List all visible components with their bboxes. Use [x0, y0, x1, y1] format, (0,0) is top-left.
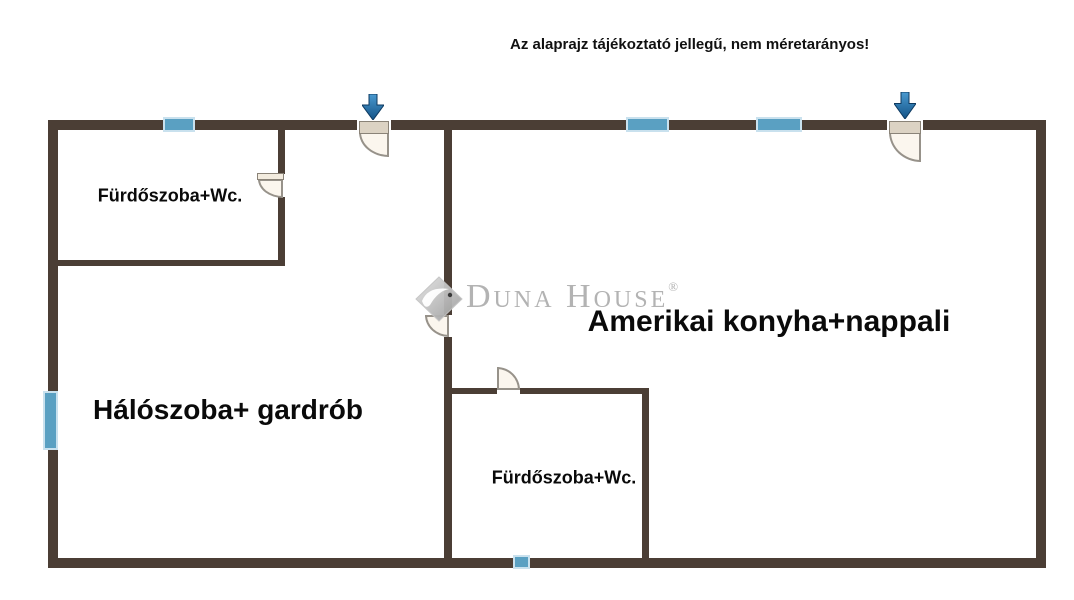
bath1-wall-bottom	[56, 260, 285, 266]
entrance-door-1-swing-arc	[359, 132, 389, 157]
window-top-3	[756, 117, 802, 132]
entrance-door-2-swing-arc	[889, 132, 921, 162]
registered-mark: ®	[668, 279, 678, 294]
window-bath2-bottom	[513, 555, 530, 569]
room-label-kitchen-living: Amerikai konyha+nappali	[588, 305, 951, 339]
duna-house-diamond-icon	[413, 276, 465, 324]
wall-divider-lower	[444, 337, 452, 562]
room-label-bedroom: Hálószoba+ gardrób	[93, 394, 363, 426]
wall-left	[48, 120, 58, 568]
disclaimer-text: Az alaprajz tájékoztató jellegű, nem mér…	[510, 36, 869, 53]
bath1-wall-right-lower	[278, 197, 285, 266]
bath1-door-swing-arc	[258, 179, 283, 198]
window-top-1	[163, 117, 195, 132]
window-left	[43, 391, 58, 450]
entrance-door-1-leaf	[359, 121, 389, 134]
entrance-door-2-leaf	[889, 121, 921, 134]
bath1-door-leaf	[257, 173, 284, 180]
wall-bottom	[48, 558, 1046, 568]
bath2-wall-right	[642, 388, 649, 560]
entrance-arrow-icon	[894, 92, 916, 119]
bath1-wall-right-upper	[278, 128, 285, 174]
bath2-wall-top-left	[452, 388, 497, 394]
bath2-wall-top-right	[520, 388, 649, 394]
bath2-door-swing-arc	[497, 367, 520, 390]
window-top-2	[626, 117, 669, 132]
room-label-bathroom-bottom: Fürdőszoba+Wc.	[492, 468, 637, 489]
wall-right	[1036, 120, 1046, 568]
room-label-bathroom-top-left: Fürdőszoba+Wc.	[98, 186, 243, 207]
floorplan-canvas: Az alaprajz tájékoztató jellegű, nem mér…	[0, 0, 1074, 600]
entrance-arrow-icon	[362, 94, 384, 120]
